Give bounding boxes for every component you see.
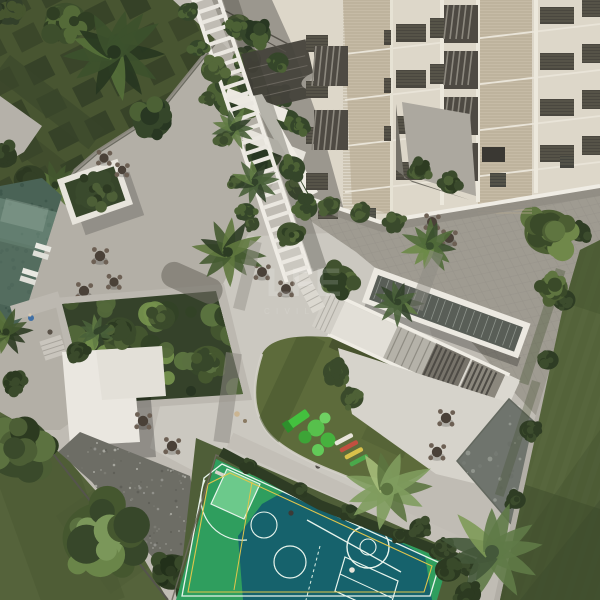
svg-text:C I V I L: C I V I L — [264, 307, 311, 316]
svg-text:LFE: LFE — [266, 261, 342, 305]
